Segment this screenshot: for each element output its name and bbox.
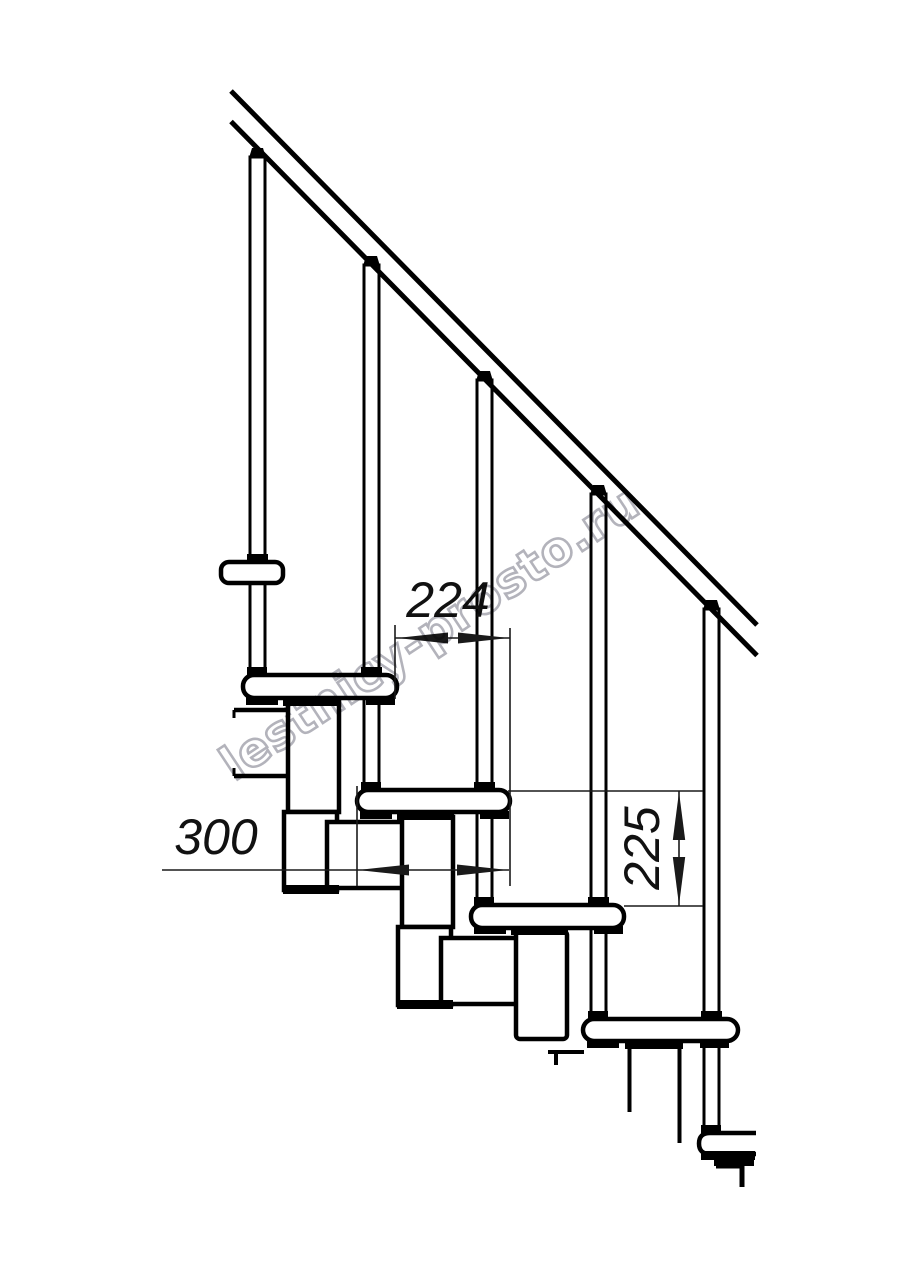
under-tread-plate (625, 1040, 683, 1049)
under-tread-plate (701, 1151, 755, 1160)
tread-foot (587, 1040, 619, 1048)
tread-0-bracket (221, 562, 283, 583)
baluster-3 (477, 380, 492, 905)
module-box (441, 938, 517, 1004)
module-box (516, 931, 567, 1039)
tread-foot (594, 926, 623, 934)
baluster-clamp (247, 667, 267, 676)
baluster-4 (591, 494, 606, 1019)
baluster-clamp (701, 1011, 722, 1020)
arrowhead-down (673, 857, 685, 905)
module-plate (397, 1000, 453, 1009)
handrail-top-line (231, 91, 757, 625)
tread-foot (700, 1040, 729, 1048)
tread-4 (583, 1019, 738, 1041)
staircase-drawing: 224 300 225 lestnicy-prosto.ru (0, 0, 914, 1280)
tread-foot (474, 926, 506, 934)
tread-foot (360, 811, 392, 819)
tread-5-partial (699, 1133, 756, 1154)
tread-3 (471, 905, 624, 928)
baluster-clamp (361, 782, 381, 791)
arrowhead-up (673, 792, 685, 840)
tread-2 (357, 790, 510, 812)
cutoff-step-lines (716, 1166, 742, 1187)
baluster-clamp (701, 1125, 721, 1134)
baluster-1 (250, 157, 265, 675)
baluster-clamp (247, 554, 268, 563)
baluster-clamp (588, 1011, 608, 1020)
module-box-fragment (630, 1048, 680, 1143)
module-box-fragment (548, 1052, 584, 1065)
module-plate (283, 885, 339, 894)
under-tread-plate (397, 811, 454, 820)
under-tread-plate (511, 926, 568, 935)
tread-foot (480, 811, 509, 819)
baluster-5 (704, 609, 719, 1133)
connector-marks (246, 148, 755, 1166)
module-box (327, 822, 403, 888)
dimension-label-225: 225 (614, 806, 670, 891)
baluster-clamp (588, 897, 609, 906)
baluster-2 (364, 265, 379, 790)
module-box (402, 817, 453, 927)
baluster-clamp (474, 897, 494, 906)
baluster-clamp (474, 782, 495, 791)
